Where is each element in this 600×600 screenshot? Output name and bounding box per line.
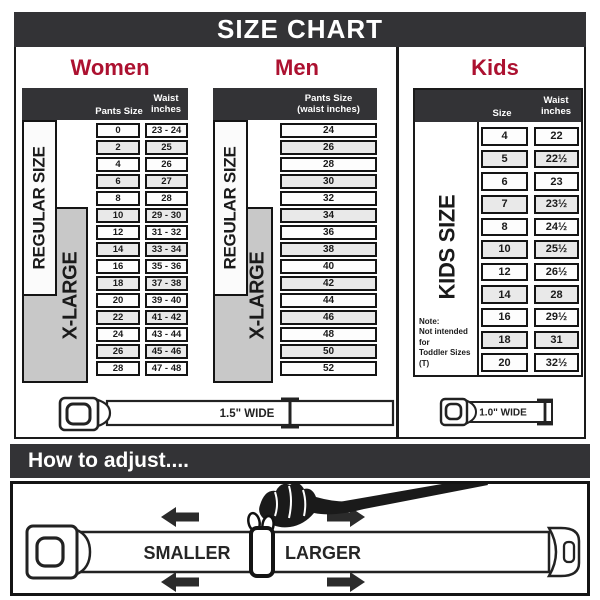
table-cell: 24 [96, 327, 140, 342]
table-cell: 14 [481, 285, 528, 304]
table-cell: 18 [481, 331, 528, 350]
kids-note-line2: Not intended for [419, 327, 477, 348]
table-cell: 6 [96, 174, 140, 189]
table-cell: 36 [280, 225, 377, 240]
table-row: 38 [280, 241, 377, 258]
table-cell: 18 [96, 276, 140, 291]
table-row: 627 [96, 173, 188, 190]
table-cell: 31 [534, 331, 579, 350]
women-regular-label: REGULAR SIZE [30, 147, 50, 270]
table-cell: 24 [280, 123, 377, 138]
table-cell: 22 [534, 127, 579, 146]
table-cell: 41 - 42 [145, 310, 188, 325]
table-cell: 30 [280, 174, 377, 189]
kids-table-header: Size Waist inches [415, 90, 581, 122]
table-row: 46 [280, 309, 377, 326]
table-cell: 31 - 32 [145, 225, 188, 240]
table-cell: 44 [280, 293, 377, 308]
men-col-header: Pants Size (waist inches) [280, 93, 377, 115]
table-row: 44 [280, 292, 377, 309]
table-cell: 4 [96, 157, 140, 172]
table-row: 26 [280, 139, 377, 156]
table-cell: 16 [481, 308, 528, 327]
table-row: 522½ [481, 149, 579, 170]
table-cell: 52 [280, 361, 377, 376]
table-cell: 25½ [534, 240, 579, 259]
table-cell: 2 [96, 140, 140, 155]
table-cell: 29½ [534, 308, 579, 327]
table-row: 2032½ [481, 352, 579, 373]
hand-icon [247, 484, 488, 535]
adjust-section-title: How to adjust.... [10, 444, 590, 478]
table-row: 1837 - 38 [96, 275, 188, 292]
women-col2-line1: Waist [144, 93, 188, 104]
kids-col2-line2: inches [533, 106, 579, 117]
buckle-button [37, 538, 63, 566]
women-col2-line2: inches [144, 104, 188, 115]
table-row: 2847 - 48 [96, 360, 188, 377]
table-row: 1428 [481, 284, 579, 305]
men-section-label: Men [247, 54, 347, 82]
kids-label-cell: KIDS SIZE Note: Not intended for Toddler… [415, 122, 479, 375]
table-cell: 12 [96, 225, 140, 240]
kids-table: Size Waist inches KIDS SIZE Note: Not in… [413, 88, 583, 377]
size-chart-page: SIZE CHART Women Men Kids Pants Size Wai… [0, 0, 600, 600]
table-row: 1226½ [481, 262, 579, 283]
table-cell: 48 [280, 327, 377, 342]
men-size-table: 242628303234363840424446485052 [280, 122, 377, 377]
table-cell: 28 [145, 191, 188, 206]
smaller-label: SMALLER [144, 543, 231, 563]
men-header-line2: (waist inches) [280, 104, 377, 115]
table-cell: 26 [280, 140, 377, 155]
table-cell: 28 [534, 285, 579, 304]
table-row: 225 [96, 139, 188, 156]
table-row: 32 [280, 190, 377, 207]
table-cell: 29 - 30 [145, 208, 188, 223]
table-cell: 16 [96, 259, 140, 274]
arrow-left-icon [161, 507, 199, 527]
table-cell: 35 - 36 [145, 259, 188, 274]
table-row: 1029 - 30 [96, 207, 188, 224]
kids-col2-line1: Waist [533, 95, 579, 106]
table-row: 828 [96, 190, 188, 207]
table-row: 1629½ [481, 307, 579, 328]
table-cell: 39 - 40 [145, 293, 188, 308]
table-cell: 20 [481, 353, 528, 372]
table-cell: 46 [280, 310, 377, 325]
table-cell: 50 [280, 344, 377, 359]
table-cell: 22½ [534, 150, 579, 169]
kids-size-table: 422522½623723½824½1025½1226½14281629½183… [481, 126, 579, 373]
women-col1-header: Pants Size [93, 106, 145, 117]
table-cell: 25 [145, 140, 188, 155]
table-cell: 26 [96, 344, 140, 359]
belt-tip-hole [564, 542, 574, 562]
adult-belt-width-label: 1.5" WIDE [220, 408, 275, 420]
table-row: 1433 - 34 [96, 241, 188, 258]
women-table-header: Pants Size Waist inches [22, 88, 188, 120]
adjust-illustration: SMALLER LARGER [10, 481, 590, 596]
table-cell: 42 [280, 276, 377, 291]
table-cell: 5 [481, 150, 528, 169]
table-cell: 26½ [534, 263, 579, 282]
larger-label: LARGER [285, 543, 361, 563]
table-cell: 28 [96, 361, 140, 376]
table-row: 52 [280, 360, 377, 377]
table-row: 2645 - 46 [96, 343, 188, 360]
table-cell: 38 [280, 242, 377, 257]
kids-note-line1: Note: [419, 317, 477, 328]
table-cell: 47 - 48 [145, 361, 188, 376]
table-row: 24 [280, 122, 377, 139]
men-table-header: Pants Size (waist inches) [213, 88, 377, 120]
table-row: 2443 - 44 [96, 326, 188, 343]
women-xlarge-label: X-LARGE [60, 251, 83, 339]
table-cell: 26 [145, 157, 188, 172]
kids-note: Note: Not intended for Toddler Sizes (T) [419, 317, 477, 370]
table-row: 50 [280, 343, 377, 360]
table-row: 1831 [481, 330, 579, 351]
arrow-left-icon [161, 572, 199, 592]
kids-col2-header: Waist inches [533, 95, 579, 117]
table-cell: 24½ [534, 218, 579, 237]
table-cell: 23½ [534, 195, 579, 214]
men-regular-box: REGULAR SIZE [213, 120, 248, 296]
table-row: 34 [280, 207, 377, 224]
table-cell: 28 [280, 157, 377, 172]
table-cell: 8 [481, 218, 528, 237]
table-cell: 33 - 34 [145, 242, 188, 257]
table-row: 426 [96, 156, 188, 173]
table-cell: 23 [534, 172, 579, 191]
kids-belt-width-label: 1.0" WIDE [479, 408, 527, 419]
kids-belt-illustration: 1.0" WIDE [435, 392, 560, 432]
page-title: SIZE CHART [14, 12, 586, 47]
table-row: 42 [280, 275, 377, 292]
table-cell: 10 [96, 208, 140, 223]
table-cell: 6 [481, 172, 528, 191]
table-row: 824½ [481, 217, 579, 238]
women-col2-header: Waist inches [144, 93, 188, 115]
buckle-button [67, 404, 90, 424]
table-cell: 37 - 38 [145, 276, 188, 291]
kids-size-label: KIDS SIZE [434, 195, 460, 300]
buckle-button [446, 404, 461, 419]
kids-col1-header: Size [477, 108, 527, 119]
table-row: 1635 - 36 [96, 258, 188, 275]
arrow-right-icon [327, 572, 365, 592]
table-row: 1025½ [481, 239, 579, 260]
belt-adjuster [251, 528, 273, 576]
table-row: 36 [280, 224, 377, 241]
table-cell: 0 [96, 123, 140, 138]
adjust-belt-diagram: SMALLER LARGER [13, 484, 587, 593]
section-divider [396, 47, 399, 439]
table-row: 723½ [481, 194, 579, 215]
kids-note-line3: Toddler Sizes (T) [419, 348, 477, 369]
table-row: 40 [280, 258, 377, 275]
table-cell: 23 - 24 [145, 123, 188, 138]
table-cell: 4 [481, 127, 528, 146]
adult-belt-illustration: 1.5" WIDE [55, 392, 400, 436]
table-cell: 40 [280, 259, 377, 274]
table-cell: 7 [481, 195, 528, 214]
table-row: 623 [481, 171, 579, 192]
table-row: 023 - 24 [96, 122, 188, 139]
table-cell: 10 [481, 240, 528, 259]
table-row: 2039 - 40 [96, 292, 188, 309]
table-cell: 20 [96, 293, 140, 308]
table-cell: 43 - 44 [145, 327, 188, 342]
table-cell: 14 [96, 242, 140, 257]
women-section-label: Women [60, 54, 160, 82]
table-cell: 8 [96, 191, 140, 206]
women-regular-box: REGULAR SIZE [22, 120, 57, 296]
women-size-table: 023 - 242254266278281029 - 301231 - 3214… [96, 122, 188, 377]
table-cell: 22 [96, 310, 140, 325]
table-row: 28 [280, 156, 377, 173]
men-header-line1: Pants Size [280, 93, 377, 104]
table-row: 2241 - 42 [96, 309, 188, 326]
table-row: 1231 - 32 [96, 224, 188, 241]
table-cell: 32½ [534, 353, 579, 372]
kids-section-label: Kids [445, 54, 545, 82]
table-cell: 27 [145, 174, 188, 189]
table-row: 30 [280, 173, 377, 190]
men-xlarge-label: X-LARGE [247, 251, 270, 339]
table-cell: 45 - 46 [145, 344, 188, 359]
table-row: 48 [280, 326, 377, 343]
men-regular-label: REGULAR SIZE [221, 147, 241, 270]
table-row: 422 [481, 126, 579, 147]
table-cell: 34 [280, 208, 377, 223]
table-cell: 32 [280, 191, 377, 206]
table-cell: 12 [481, 263, 528, 282]
